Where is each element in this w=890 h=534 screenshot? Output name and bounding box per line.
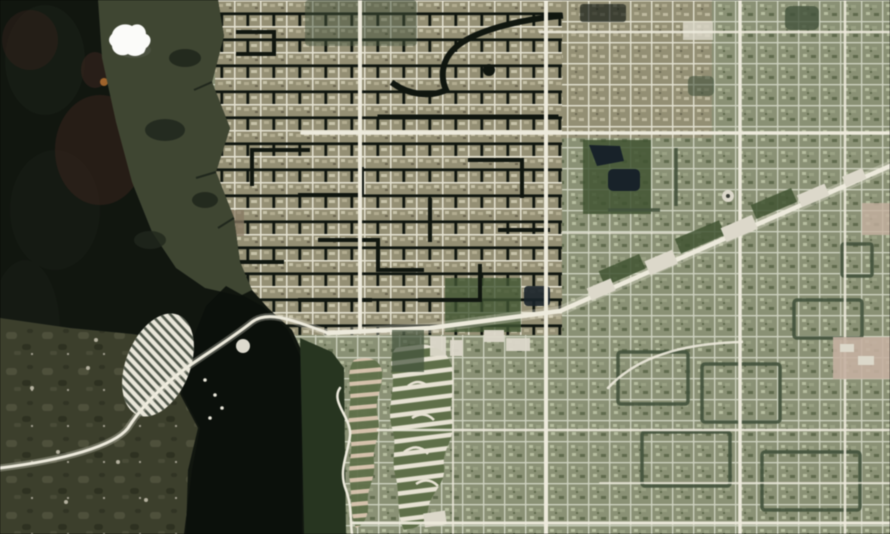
plaza-roof bbox=[840, 344, 854, 352]
wooded-lot bbox=[392, 330, 424, 372]
commercial-building bbox=[506, 338, 530, 351]
plaza-roof bbox=[858, 356, 874, 365]
wetland-thicket bbox=[192, 192, 218, 208]
commercial-building bbox=[484, 330, 504, 342]
park-block bbox=[785, 6, 819, 30]
cloud-puff bbox=[137, 46, 145, 54]
mudflat bbox=[2, 10, 58, 70]
park-block bbox=[688, 76, 714, 96]
canal-basin bbox=[483, 64, 495, 76]
retention-pond bbox=[608, 169, 640, 191]
wetland-thicket bbox=[169, 49, 201, 67]
bridge-landing bbox=[236, 339, 250, 353]
forest-strip bbox=[300, 338, 346, 534]
satellite-image: Satellite view of a gulf-coast Florida s… bbox=[0, 0, 890, 534]
wetland-thicket bbox=[145, 119, 185, 141]
commercial-building bbox=[450, 340, 463, 356]
dome-shadow bbox=[726, 194, 730, 198]
satellite-map-canvas: Satellite view of a gulf-coast Florida s… bbox=[0, 0, 890, 534]
wetland-thicket bbox=[134, 231, 166, 249]
commercial-building bbox=[430, 336, 446, 356]
shopping-plaza bbox=[862, 203, 890, 235]
dark-canal-block bbox=[580, 4, 626, 22]
